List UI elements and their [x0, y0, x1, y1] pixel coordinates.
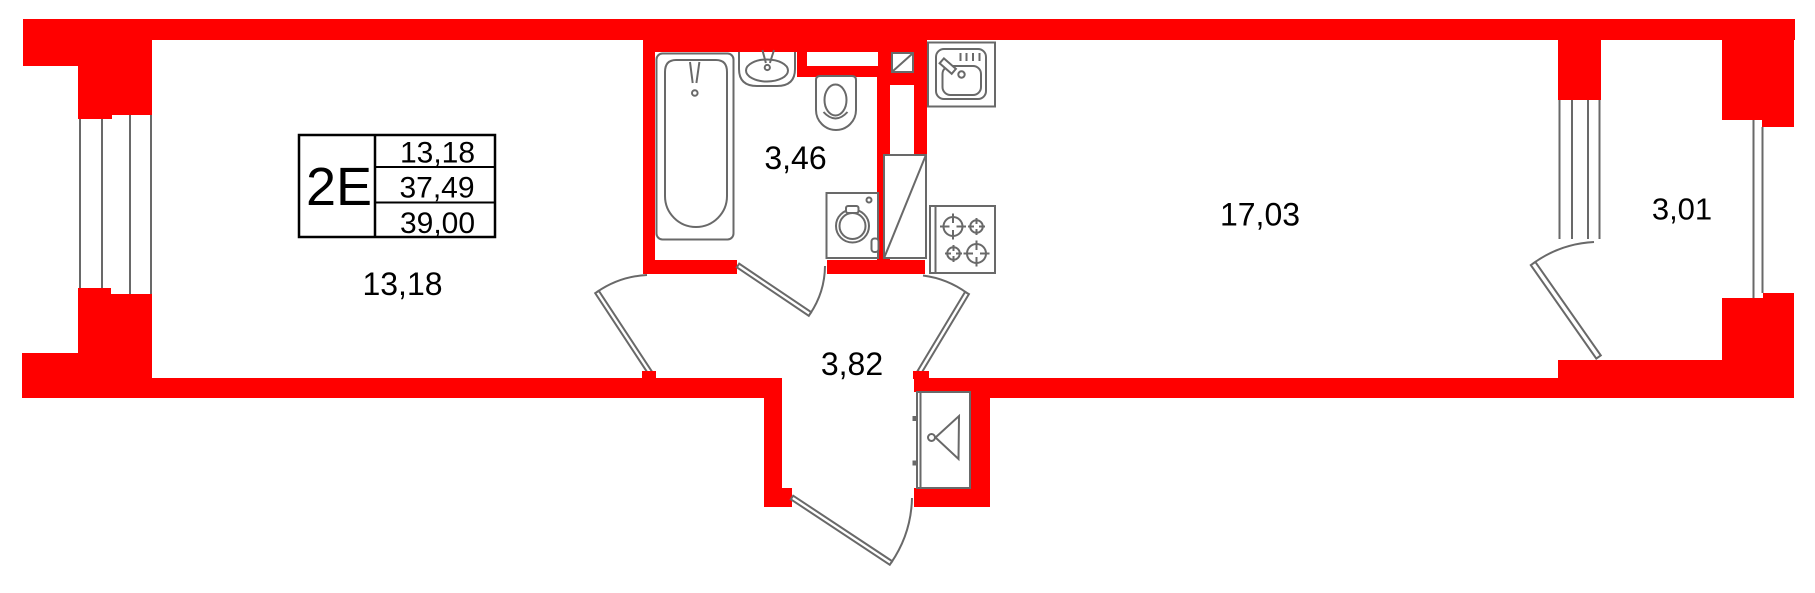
- svg-text:39,00: 39,00: [400, 207, 475, 240]
- svg-text:3,82: 3,82: [821, 346, 883, 382]
- svg-text:13,18: 13,18: [362, 266, 442, 302]
- svg-text:3,01: 3,01: [1652, 192, 1712, 227]
- svg-text:37,49: 37,49: [399, 172, 474, 205]
- svg-text:2Е: 2Е: [306, 157, 372, 217]
- svg-text:17,03: 17,03: [1220, 197, 1300, 233]
- svg-text:3,46: 3,46: [764, 140, 826, 176]
- svg-text:13,18: 13,18: [400, 137, 475, 170]
